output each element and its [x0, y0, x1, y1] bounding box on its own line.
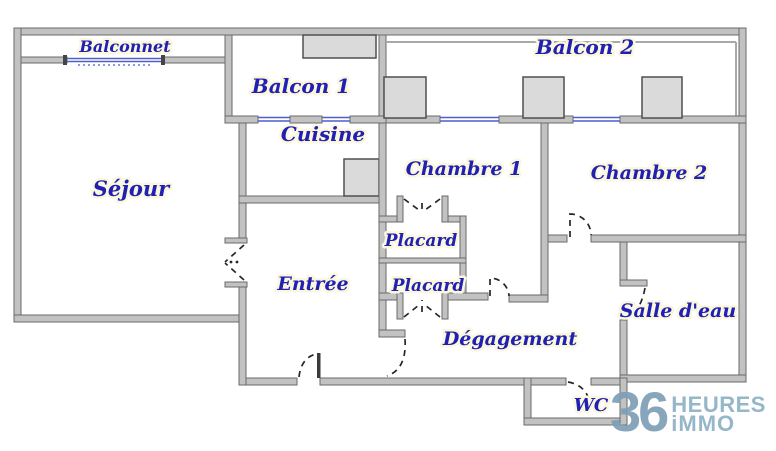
label-chambre-1: Chambre 1 — [406, 158, 523, 180]
facade-pillar-b — [523, 77, 564, 118]
wall-chambre2-bottom-left — [548, 235, 567, 242]
wall-salle-eau-bottom — [620, 375, 746, 382]
door-entree-degagement — [387, 339, 405, 376]
wall-sejour-entree-lower — [239, 287, 246, 385]
wall-bottom-mid — [320, 378, 531, 385]
floor-plan-screenshot: Balconnet Balcon 1 Balcon 2 Séjour Cuisi… — [0, 0, 776, 451]
doors — [225, 199, 645, 403]
door-chambre2 — [570, 214, 591, 237]
placard-mid-wall — [379, 258, 466, 263]
wall-mid-vertical — [379, 123, 386, 337]
label-wc: WC — [574, 395, 609, 416]
door-placard-bas — [404, 300, 440, 317]
door-sejour-dot1 — [230, 261, 233, 264]
cuisine-block — [344, 159, 379, 196]
label-balcon-1: Balcon 1 — [251, 74, 350, 98]
sejour-door-jamb-bottom — [225, 282, 247, 287]
wall-balconnet-right — [163, 57, 232, 63]
wall-sejour-bottom — [14, 315, 246, 322]
wall-balcon2-facade-c — [620, 116, 746, 123]
wall-left — [14, 28, 21, 322]
door-sejour-dot2 — [236, 261, 239, 264]
wall-salle-eau-left-lower — [620, 320, 627, 375]
sejour-door-jamb-top — [225, 238, 247, 243]
wall-salle-eau-left-upper — [620, 242, 627, 283]
wall-chambre-divider — [541, 123, 548, 302]
label-entree: Entrée — [276, 273, 348, 295]
wc-top-wall-left — [531, 378, 566, 385]
wall-bottom-left — [239, 378, 297, 385]
balcon1-pillar — [303, 35, 376, 58]
wall-cuisine-bottom — [239, 196, 386, 203]
wall-chambre2-bottom-right — [591, 235, 746, 242]
door-sejour — [225, 245, 244, 280]
label-sejour: Séjour — [93, 176, 171, 201]
placard-post-top-left — [397, 196, 403, 222]
placard-post-top-right — [442, 196, 448, 222]
wall-sejour-entree-upper — [239, 123, 246, 243]
placard-structure — [379, 196, 488, 319]
door-placard-haut — [404, 199, 440, 214]
placard-post-bottom-right — [442, 293, 448, 319]
label-placard-bas: Placard — [391, 276, 465, 296]
wall-sejour-balcon1 — [225, 35, 232, 123]
label-salle-eau: Salle d'eau — [620, 300, 737, 322]
window-tick-right — [161, 55, 165, 65]
placard-post-bottom-left — [397, 293, 403, 319]
label-placard-haut: Placard — [384, 231, 458, 251]
door-chambre1 — [490, 278, 509, 296]
front-door-leaf — [317, 353, 321, 378]
wc-bottom-wall — [524, 418, 627, 425]
wall-right — [739, 28, 746, 382]
label-cuisine: Cuisine — [281, 122, 365, 146]
wall-balconnet-left — [21, 57, 67, 63]
facade-pillar-c — [642, 77, 682, 118]
facade-pillar-a — [384, 77, 426, 118]
wc-top-wall-right — [591, 378, 620, 385]
label-chambre-2: Chambre 2 — [591, 162, 708, 184]
balconnet-structure — [21, 55, 232, 65]
label-degagement: Dégagement — [442, 328, 578, 350]
wall-degagement-top — [509, 295, 548, 302]
placard-top-wall-left — [379, 216, 397, 222]
wall-top — [14, 28, 746, 35]
floor-plan: Balconnet Balcon 1 Balcon 2 Séjour Cuisi… — [0, 0, 776, 451]
label-balcon-2: Balcon 2 — [535, 35, 634, 59]
label-balconnet: Balconnet — [78, 37, 171, 56]
salle-eau-door-leaf — [620, 280, 647, 286]
entree-doorway-header — [379, 330, 405, 337]
door-front — [299, 354, 316, 377]
wall-balcon1-bottom-a — [225, 116, 258, 123]
window-tick-left — [63, 55, 67, 65]
wc-right-wall — [620, 378, 627, 425]
